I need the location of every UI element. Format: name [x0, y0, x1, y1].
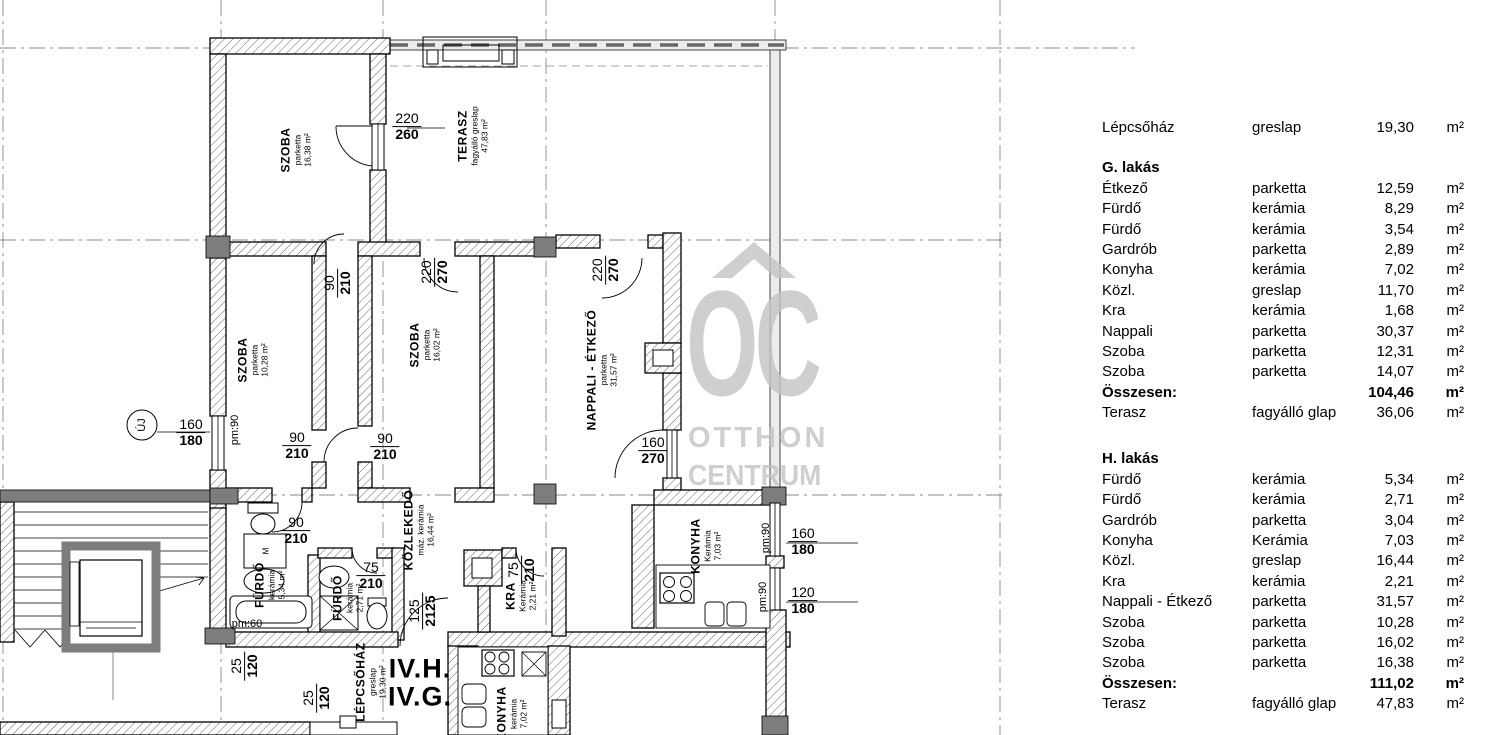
legend-area-value: 7,03	[1368, 532, 1414, 549]
legend-area-unit: m²	[1414, 471, 1464, 488]
legend-row: Összesen:111,02m²	[1102, 675, 1477, 695]
dim-door-szoba-1602-left: 90210	[370, 431, 399, 463]
legend-room-name: Közl.	[1102, 552, 1252, 569]
legend-area-unit: m²	[1414, 552, 1464, 569]
dim-window-konyha-2: 120180	[788, 585, 817, 617]
room-label-szoba-1028: SZOBA parketta 10,28 m²	[236, 338, 269, 383]
room-label-szoba-1638: SZOBA parketta 16,38 m²	[279, 128, 312, 173]
legend-area-unit: m²	[1414, 695, 1464, 712]
legend-room-name: Terasz	[1102, 695, 1252, 712]
legend-sections: G. lakásÉtkezőparketta12,59m²Fürdőkerámi…	[1102, 159, 1477, 735]
legend-room-name: Szoba	[1102, 614, 1252, 631]
legend-area-unit: m²	[1414, 261, 1464, 278]
legend-area-unit: m²	[1414, 532, 1464, 549]
legend-room-name: Szoba	[1102, 654, 1252, 671]
legend-area-unit: m²	[1414, 363, 1464, 380]
legend-area-value: 2,71	[1368, 491, 1414, 508]
legend-row: Fürdőkerámia5,34m²	[1102, 471, 1477, 491]
room-label-lepcsohaz: LÉPCSŐHÁZ greslap 19,30 m²	[354, 642, 387, 721]
legend-room-name: Fürdő	[1102, 491, 1252, 508]
legend-row-lepcsohaz: Lépcsőház greslap 19,30 m²	[1102, 119, 1477, 139]
legend-area-value: 19,30	[1368, 119, 1414, 136]
legend-room-name: Konyha	[1102, 261, 1252, 278]
legend-area-unit: m²	[1414, 323, 1464, 340]
kitchen-h-fixtures	[656, 565, 770, 628]
legend-row: Teraszfagyálló glap36,06m²	[1102, 404, 1477, 424]
legend-room-name: Nappali - Étkező	[1102, 593, 1252, 610]
dim-door-furdo-534: 90210	[281, 515, 310, 547]
parapet-label-bathtub: pm:60	[232, 618, 263, 630]
legend-row: Fürdőkerámia2,71m²	[1102, 491, 1477, 511]
legend-area-value: 10,28	[1368, 614, 1414, 631]
room-label-terasz: TERASZ fagyálló greslap 47,83 m²	[456, 106, 489, 166]
legend-room-name: Terasz	[1102, 404, 1252, 421]
legend-material: parketta	[1252, 343, 1368, 360]
legend-area-unit: m²	[1414, 282, 1464, 299]
parapet-label-konyha-window-2: pm:90	[757, 582, 769, 613]
legend-area-unit: m²	[1414, 384, 1464, 401]
legend-area-unit: m²	[1414, 512, 1464, 529]
floor-plan-sheet: OC OTTHON CENTRUM SZOBA parketta 16,38 m…	[0, 0, 1506, 735]
legend-material: kerámia	[1252, 261, 1368, 278]
legend-room-name: Összesen:	[1102, 675, 1252, 692]
parapet-label-konyha-window-1: pm:90	[760, 523, 772, 554]
legend-material: parketta	[1252, 180, 1368, 197]
legend-row: Krakerámia2,21m²	[1102, 573, 1477, 593]
legend-area-value: 16,38	[1368, 654, 1414, 671]
legend-row: Konyhakerámia7,02m²	[1102, 261, 1477, 281]
legend-area-unit: m²	[1414, 654, 1464, 671]
legend-row: Fürdőkerámia3,54m²	[1102, 221, 1477, 241]
legend-section-title: G. lakás	[1102, 159, 1252, 176]
legend-section-title-row: G. lakás	[1102, 159, 1477, 179]
legend-row: Krakerámia1,68m²	[1102, 302, 1477, 322]
dim-door-furdo-271: 75210	[356, 560, 385, 592]
legend-area-value: 3,54	[1368, 221, 1414, 238]
legend-room-name: Nappali	[1102, 323, 1252, 340]
legend-area-unit: m²	[1414, 200, 1464, 217]
legend-material: greslap	[1252, 552, 1368, 569]
legend-area-value: 14,07	[1368, 363, 1414, 380]
legend-material: parketta	[1252, 614, 1368, 631]
legend-material: parketta	[1252, 593, 1368, 610]
legend-area-unit: m²	[1414, 241, 1464, 258]
legend-room-name: Gardrób	[1102, 241, 1252, 258]
legend-area-value: 30,37	[1368, 323, 1414, 340]
dim-door-kra: 75210	[506, 555, 538, 584]
legend-area-value: 16,02	[1368, 634, 1414, 651]
legend-room-name: Szoba	[1102, 343, 1252, 360]
legend-area-value: 12,31	[1368, 343, 1414, 360]
room-label-szoba-1602: SZOBA parketta 16,02 m²	[408, 323, 441, 368]
legend-row: Étkezőparketta12,59m²	[1102, 180, 1477, 200]
grid-lines	[0, 0, 1135, 735]
legend-area-value: 111,02	[1368, 675, 1414, 692]
dim-door-90-210-top: 90210	[322, 268, 354, 297]
legend-area-value: 7,02	[1368, 261, 1414, 278]
room-label-furdo-534: FÜRDŐ kerámia 5,34 m²	[253, 562, 286, 608]
legend-section-title: H. lakás	[1102, 450, 1252, 467]
legend-material: parketta	[1252, 323, 1368, 340]
legend-area-unit: m²	[1414, 593, 1464, 610]
legend-row: Nappaliparketta30,37m²	[1102, 323, 1477, 343]
legend-area-unit: m²	[1414, 675, 1464, 692]
elevator	[66, 546, 156, 648]
legend-material: parketta	[1252, 241, 1368, 258]
legend-row: Közl.greslap11,70m²	[1102, 282, 1477, 302]
legend-row: Fürdőkerámia8,29m²	[1102, 200, 1477, 220]
legend-area-value: 16,44	[1368, 552, 1414, 569]
uj-marker-label: ÚJ	[136, 418, 148, 431]
legend-room-name: Fürdő	[1102, 200, 1252, 217]
washing-machine-label: M	[262, 548, 271, 555]
legend-area-value: 8,29	[1368, 200, 1414, 217]
legend-area-unit: m²	[1414, 614, 1464, 631]
legend-material: parketta	[1252, 634, 1368, 651]
legend-material: kerámia	[1252, 200, 1368, 217]
legend-material: greslap	[1252, 282, 1368, 299]
parapet-label-uj-window: pm:90	[229, 415, 241, 446]
room-label-konyha-703: KONYHA Kerámia 7,03 m²	[689, 518, 722, 574]
legend-area-unit: m²	[1414, 634, 1464, 651]
unit-label-iv-g: IV.G.	[388, 682, 452, 713]
legend-material: parketta	[1252, 654, 1368, 671]
floor-plan-drawing	[0, 0, 1140, 735]
legend-area-unit: m²	[1414, 573, 1464, 590]
legend-row: KonyhaKerámia7,03m²	[1102, 532, 1477, 552]
legend-room-name: Kra	[1102, 302, 1252, 319]
dim-door-nappali-top: 220270	[590, 255, 622, 284]
legend-material: parketta	[1252, 363, 1368, 380]
legend-room-name: Kra	[1102, 573, 1252, 590]
legend-row: Teraszfagyálló glap47,83m²	[1102, 695, 1477, 715]
legend-row: Szobaparketta14,07m²	[1102, 363, 1477, 383]
dim-door-nappali-terasz: 160270	[638, 435, 667, 467]
legend-room-name: Összesen:	[1102, 384, 1252, 401]
area-legend: Lépcsőház greslap 19,30 m² G. lakásÉtkez…	[1102, 119, 1477, 735]
legend-material: kerámia	[1252, 573, 1368, 590]
legend-area-value: 12,59	[1368, 180, 1414, 197]
legend-area-unit: m²	[1414, 343, 1464, 360]
legend-row: Szobaparketta10,28m²	[1102, 614, 1477, 634]
legend-room-name: Szoba	[1102, 363, 1252, 380]
dim-door-szoba-1028: 90210	[282, 430, 311, 462]
legend-area-value: 11,70	[1368, 282, 1414, 299]
legend-row: Gardróbparketta3,04m²	[1102, 512, 1477, 532]
legend-room-name: Konyha	[1102, 532, 1252, 549]
legend-room-name: Lépcsőház	[1102, 119, 1252, 136]
legend-material: greslap	[1252, 119, 1368, 136]
legend-area-value: 5,34	[1368, 471, 1414, 488]
legend-room-name: Közl.	[1102, 282, 1252, 299]
room-label-nappali-etkezo: NAPPALI - ÉTKEZŐ parketta 31,57 m²	[585, 310, 618, 431]
legend-row: Közl.greslap16,44m²	[1102, 552, 1477, 572]
legend-material: kerámia	[1252, 491, 1368, 508]
legend-room-name: Étkező	[1102, 180, 1252, 197]
dim-door-szoba-terasz: 220260	[392, 111, 421, 143]
legend-area-value: 3,04	[1368, 512, 1414, 529]
room-label-kozlekedo: KÖZLEKEDŐ máz. kerámia 16,44 m²	[402, 490, 435, 571]
legend-row: Szobaparketta12,31m²	[1102, 343, 1477, 363]
legend-area-value: 104,46	[1368, 384, 1414, 401]
legend-row: Nappali - Étkezőparketta31,57m²	[1102, 593, 1477, 613]
legend-row: Gardróbparketta2,89m²	[1102, 241, 1477, 261]
room-label-konyha-702: KONYHA kerámia 7,02 m²	[495, 686, 528, 735]
legend-room-name: Fürdő	[1102, 221, 1252, 238]
legend-area-value: 36,06	[1368, 404, 1414, 421]
legend-material: parketta	[1252, 512, 1368, 529]
dim-entrance-door: 1252125	[407, 592, 439, 629]
legend-row: Szobaparketta16,38m²	[1102, 654, 1477, 674]
legend-material: fagyálló glap	[1252, 695, 1368, 712]
legend-section-title-row: H. lakás	[1102, 450, 1477, 470]
legend-area-unit: m²	[1414, 221, 1464, 238]
legend-material: fagyálló glap	[1252, 404, 1368, 421]
legend-room-name: Szoba	[1102, 634, 1252, 651]
legend-material: kerámia	[1252, 221, 1368, 238]
dim-window-uj: 160180	[176, 417, 205, 449]
legend-area-unit: m²	[1414, 180, 1464, 197]
legend-row: Szobaparketta16,02m²	[1102, 634, 1477, 654]
dim-step-25-120-right: 25120	[301, 683, 333, 712]
legend-area-value: 2,89	[1368, 241, 1414, 258]
legend-material: kerámia	[1252, 302, 1368, 319]
room-label-kra: KRA Kerámia 2,21 m²	[504, 580, 537, 612]
legend-area-unit: m²	[1414, 302, 1464, 319]
dim-door-szoba-1602: 220270	[419, 257, 451, 286]
legend-area-value: 31,57	[1368, 593, 1414, 610]
legend-row: Összesen:104,46m²	[1102, 384, 1477, 404]
unit-label-iv-h: IV.H.	[389, 654, 452, 685]
legend-area-value: 47,83	[1368, 695, 1414, 712]
legend-room-name: Fürdő	[1102, 471, 1252, 488]
dim-window-konyha-1: 160180	[788, 526, 817, 558]
dim-step-25-120-left: 25120	[229, 651, 261, 680]
legend-area-unit: m²	[1414, 491, 1464, 508]
legend-room-name: Gardrób	[1102, 512, 1252, 529]
legend-material: kerámia	[1252, 471, 1368, 488]
legend-area-value: 2,21	[1368, 573, 1414, 590]
legend-area-unit: m²	[1414, 119, 1464, 136]
legend-area-value: 1,68	[1368, 302, 1414, 319]
legend-area-unit: m²	[1414, 404, 1464, 421]
legend-material: Kerámia	[1252, 532, 1368, 549]
